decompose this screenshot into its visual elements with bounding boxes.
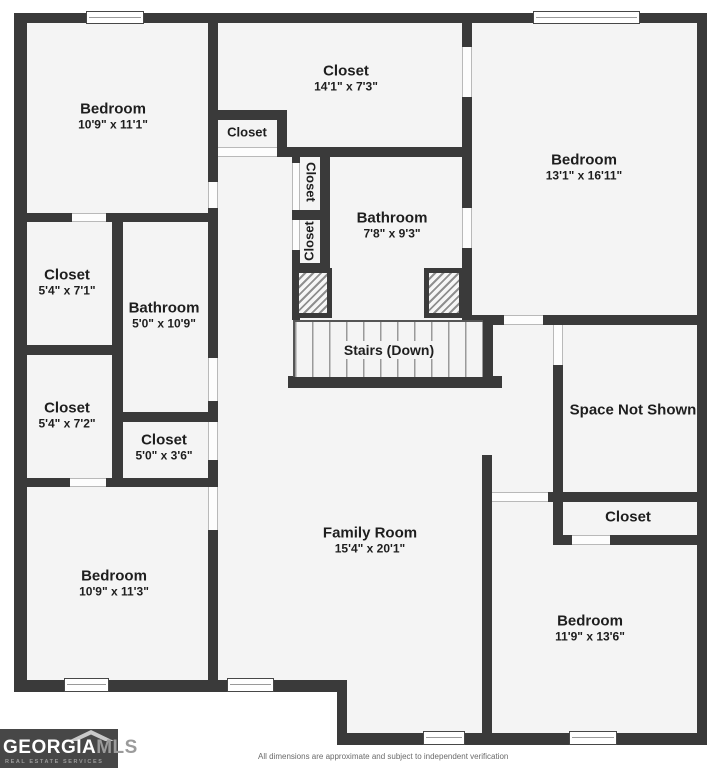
window: [227, 678, 274, 692]
window: [569, 731, 617, 745]
window: [533, 11, 640, 24]
disclaimer-text: All dimensions are approximate and subje…: [258, 752, 508, 761]
door-opening: [553, 325, 563, 365]
door-opening: [208, 358, 218, 401]
room-label-bedroom-top-right: Bedroom 13'1" x 16'11": [546, 152, 622, 185]
hatch-block: [294, 268, 332, 318]
wall-interior: [320, 147, 330, 273]
room-label-bathroom-main: Bathroom 7'8" x 9'3": [357, 210, 428, 243]
wall-interior: [292, 147, 300, 163]
wall-interior: [543, 315, 697, 325]
wall-interior: [462, 97, 472, 208]
door-opening: [208, 487, 218, 530]
wall-interior: [106, 478, 218, 487]
room-label-bathroom-left: Bathroom 5'0" x 10'9": [129, 300, 200, 333]
floorplan-image: Stairs (Down) Bedroom 10'9" x 11'1" Clos…: [0, 0, 717, 768]
wall-stairs-bottom: [288, 376, 502, 388]
door-opening: [218, 147, 277, 157]
room-label-family-room: Family Room 15'4" x 20'1": [323, 525, 417, 558]
wall-exterior-right: [697, 13, 707, 745]
door-opening: [462, 208, 472, 248]
stairs-label: Stairs (Down): [339, 341, 439, 359]
door-opening: [492, 492, 548, 502]
wall-exterior-bottom: [337, 733, 707, 745]
wall-interior: [106, 213, 218, 222]
room-label-closet-small: Closet: [227, 126, 267, 141]
wall-interior: [553, 535, 572, 545]
door-opening: [70, 478, 106, 487]
door-opening: [208, 422, 218, 460]
logo-text-mls: MLS: [96, 737, 138, 758]
georgia-mls-logo: GEORGIAMLS REAL ESTATE SERVICES: [0, 729, 118, 768]
wall-interior: [277, 147, 467, 157]
room-label-closet-narrow-1: Closet: [303, 162, 318, 202]
wall-interior: [482, 455, 492, 745]
window: [423, 731, 465, 745]
wall-interior: [14, 213, 72, 222]
stairs: Stairs (Down): [293, 320, 483, 377]
wall-interior: [548, 492, 697, 502]
room-label-closet-top: Closet 14'1" x 7'3": [314, 63, 378, 96]
room-label-bedroom-top-left: Bedroom 10'9" x 11'1": [78, 101, 148, 134]
logo-wordmark: GEORGIAMLS: [3, 738, 138, 757]
wall-interior: [14, 345, 123, 355]
hatch-block: [424, 268, 464, 318]
window: [86, 11, 144, 24]
room-label-bedroom-bottom-left: Bedroom 10'9" x 11'3": [79, 568, 149, 601]
wall-spine: [208, 13, 218, 182]
door-opening: [292, 163, 300, 210]
logo-tagline: REAL ESTATE SERVICES: [5, 759, 104, 765]
room-label-bedroom-bottom-right: Bedroom 11'9" x 13'6": [555, 613, 625, 646]
logo-text-georgia: GEORGIA: [3, 737, 96, 758]
door-opening: [572, 535, 610, 545]
wall-interior: [14, 478, 70, 487]
wall-spine: [208, 530, 218, 682]
room-label-space-not-shown: Space Not Shown: [570, 401, 697, 418]
window: [64, 678, 109, 692]
door-opening: [292, 220, 300, 250]
room-label-closet-left-3: Closet 5'0" x 3'6": [135, 432, 192, 465]
room-label-closet-narrow-2: Closet: [303, 221, 318, 261]
door-opening: [72, 213, 106, 222]
wall-interior: [483, 318, 493, 380]
door-opening: [208, 182, 218, 208]
room-label-closet-left-2: Closet 5'4" x 7'2": [38, 400, 95, 433]
door-opening: [504, 315, 543, 325]
wall-interior: [553, 365, 563, 545]
wall-interior: [462, 13, 472, 47]
wall-interior: [112, 412, 218, 422]
wall-interior: [610, 535, 697, 545]
wall-spine: [208, 208, 218, 358]
room-label-closet-right: Closet: [605, 508, 651, 525]
door-opening: [462, 47, 472, 97]
room-label-closet-left-1: Closet 5'4" x 7'1": [38, 267, 95, 300]
wall-interior: [208, 110, 287, 120]
